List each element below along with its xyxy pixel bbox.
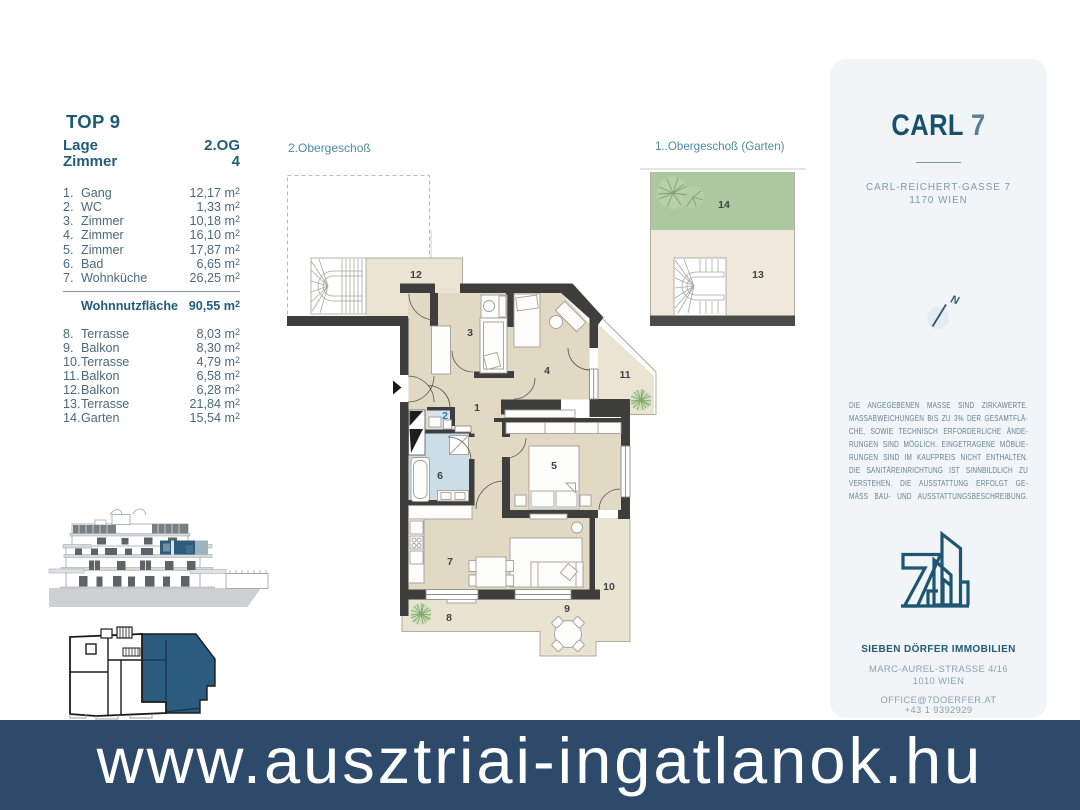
svg-text:12: 12	[410, 269, 422, 281]
svg-text:10: 10	[603, 581, 615, 593]
svg-text:2: 2	[442, 410, 448, 422]
svg-text:1: 1	[474, 402, 480, 414]
svg-text:9: 9	[564, 603, 570, 615]
svg-text:14: 14	[718, 199, 730, 211]
svg-text:3: 3	[467, 327, 473, 339]
svg-text:7: 7	[447, 556, 453, 568]
svg-text:13: 13	[752, 269, 764, 281]
svg-text:5: 5	[551, 460, 557, 472]
svg-text:N: N	[949, 293, 961, 307]
svg-text:6: 6	[437, 470, 443, 482]
svg-text:4: 4	[544, 365, 550, 377]
svg-text:11: 11	[619, 369, 630, 381]
svg-text:8: 8	[446, 612, 452, 624]
